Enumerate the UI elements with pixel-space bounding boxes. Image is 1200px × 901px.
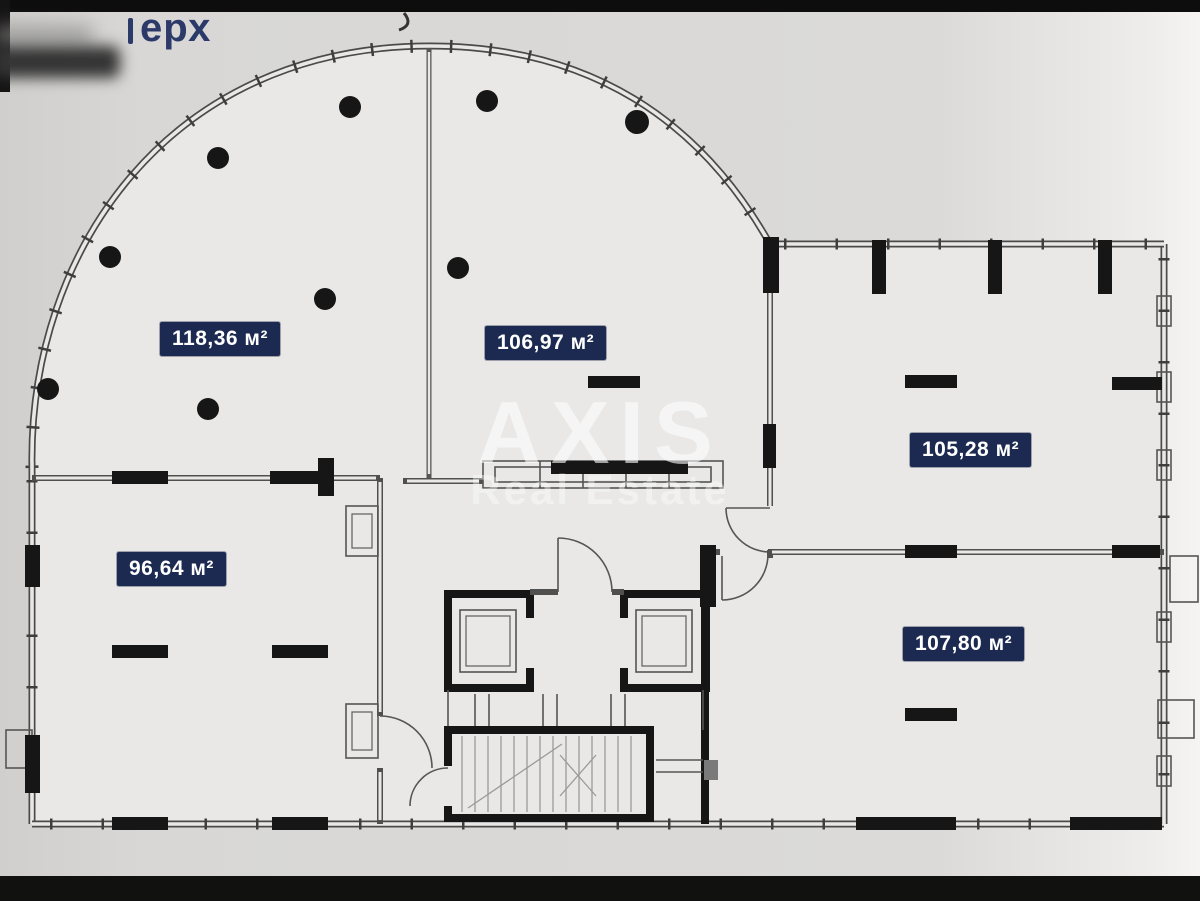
- blur-smudge-dark: [0, 46, 120, 78]
- stray-ink-mark: [399, 13, 408, 30]
- exterior-column: [704, 760, 718, 780]
- scan-border-bottom: [0, 876, 1200, 901]
- balcony-box-upper: [1170, 556, 1198, 602]
- cut-letter-remnant: [128, 18, 133, 44]
- blur-smudge-light: [0, 26, 94, 46]
- room-area-label: 106,97 м²: [485, 326, 606, 360]
- room-area-label: 96,64 м²: [117, 552, 226, 586]
- room-area-label: 107,80 м²: [903, 627, 1024, 661]
- room-area-label: 118,36 м²: [160, 322, 280, 356]
- floorplan-page: ерх 118,36 м² 106,97 м² 105,28 м² 96,64 …: [0, 0, 1200, 901]
- handwritten-note: ерх: [140, 6, 211, 51]
- room-area-label: 105,28 м²: [910, 433, 1031, 467]
